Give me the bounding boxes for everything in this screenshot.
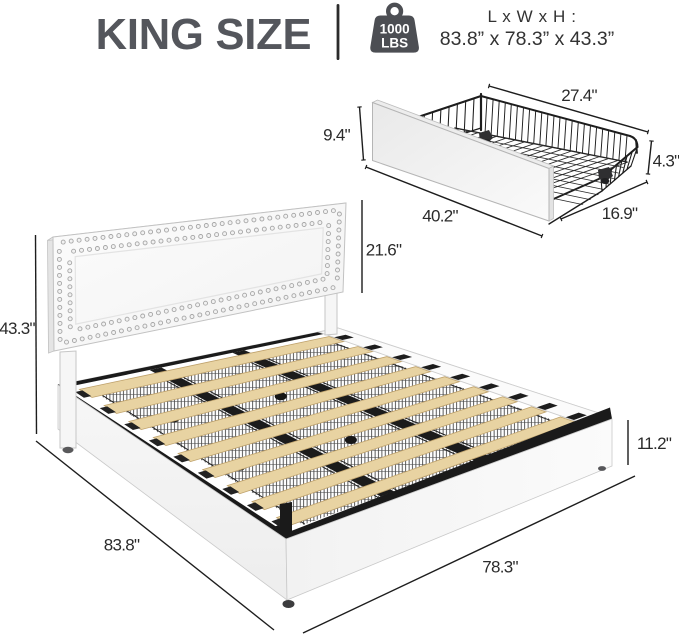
svg-text:9.4": 9.4": [323, 126, 351, 145]
svg-text:4.3": 4.3": [653, 152, 679, 171]
svg-text:L x W x H :: L x W x H :: [487, 7, 576, 26]
svg-text:78.3": 78.3": [482, 558, 518, 577]
svg-text:16.9": 16.9": [602, 204, 638, 223]
svg-text:11.2": 11.2": [637, 434, 672, 453]
svg-text:27.4": 27.4": [561, 86, 597, 105]
svg-text:21.6": 21.6": [366, 241, 402, 260]
svg-text:83.8” x 78.3” x 43.3”: 83.8” x 78.3” x 43.3”: [440, 28, 615, 50]
svg-text:43.3": 43.3": [0, 319, 35, 338]
svg-text:40.2": 40.2": [422, 207, 458, 226]
svg-text:LBS: LBS: [381, 36, 408, 51]
svg-text:KING SIZE: KING SIZE: [96, 11, 312, 59]
svg-text:1000: 1000: [380, 22, 410, 37]
svg-text:83.8": 83.8": [104, 536, 140, 555]
